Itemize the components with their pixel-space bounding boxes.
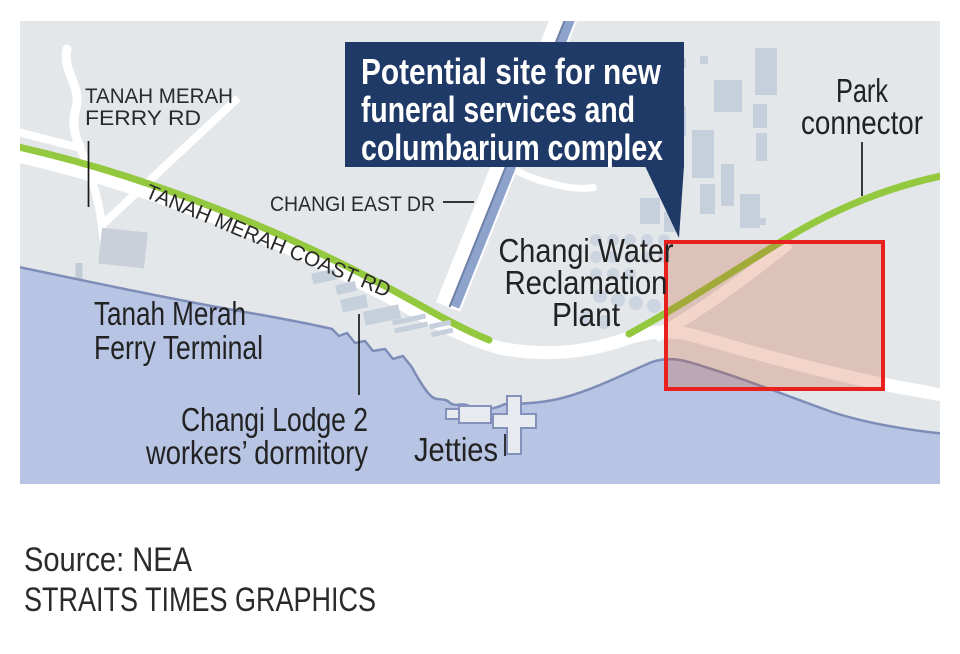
building bbox=[740, 194, 760, 228]
label-reclamation-line3: Plant bbox=[552, 296, 620, 333]
label-ferry-terminal-line2: Ferry Terminal bbox=[94, 329, 263, 366]
label-park-line2: connector bbox=[801, 104, 923, 141]
callout-line1: Potential site for new bbox=[361, 51, 662, 92]
building bbox=[640, 198, 660, 224]
callout-line2: funeral services and bbox=[361, 89, 635, 130]
ferry-terminal-building bbox=[98, 228, 148, 269]
building bbox=[758, 218, 766, 225]
building bbox=[700, 56, 708, 64]
label-ferry-rd-line1: TANAH MERAH bbox=[85, 85, 233, 108]
map-canvas: TANAH MERAH FERRY RD TANAH MERAH COAST R… bbox=[0, 0, 960, 654]
map-area: TANAH MERAH FERRY RD TANAH MERAH COAST R… bbox=[14, 16, 946, 492]
callout-line3: columbarium complex bbox=[361, 127, 663, 168]
credit-line: STRAITS TIMES GRAPHICS bbox=[24, 581, 376, 619]
jetty-stub bbox=[446, 409, 459, 419]
label-lodge-line1: Changi Lodge 2 bbox=[181, 401, 368, 438]
jetty-l bbox=[459, 406, 491, 423]
building bbox=[755, 48, 777, 95]
label-lodge-line2: workers’ dormitory bbox=[145, 434, 368, 471]
building bbox=[756, 133, 767, 161]
label-changi-east-dr: CHANGI EAST DR bbox=[270, 193, 435, 216]
building bbox=[692, 130, 714, 178]
building bbox=[700, 184, 715, 214]
building bbox=[753, 104, 767, 128]
news-map-graphic: TANAH MERAH FERRY RD TANAH MERAH COAST R… bbox=[0, 0, 960, 654]
source-line: Source: NEA bbox=[24, 541, 192, 579]
building bbox=[714, 80, 742, 112]
label-ferry-terminal-line1: Tanah Merah bbox=[94, 295, 246, 332]
highlight-area bbox=[666, 242, 883, 389]
building bbox=[721, 164, 734, 206]
label-jetties: Jetties bbox=[414, 431, 498, 468]
label-ferry-rd-line2: FERRY RD bbox=[85, 107, 201, 130]
